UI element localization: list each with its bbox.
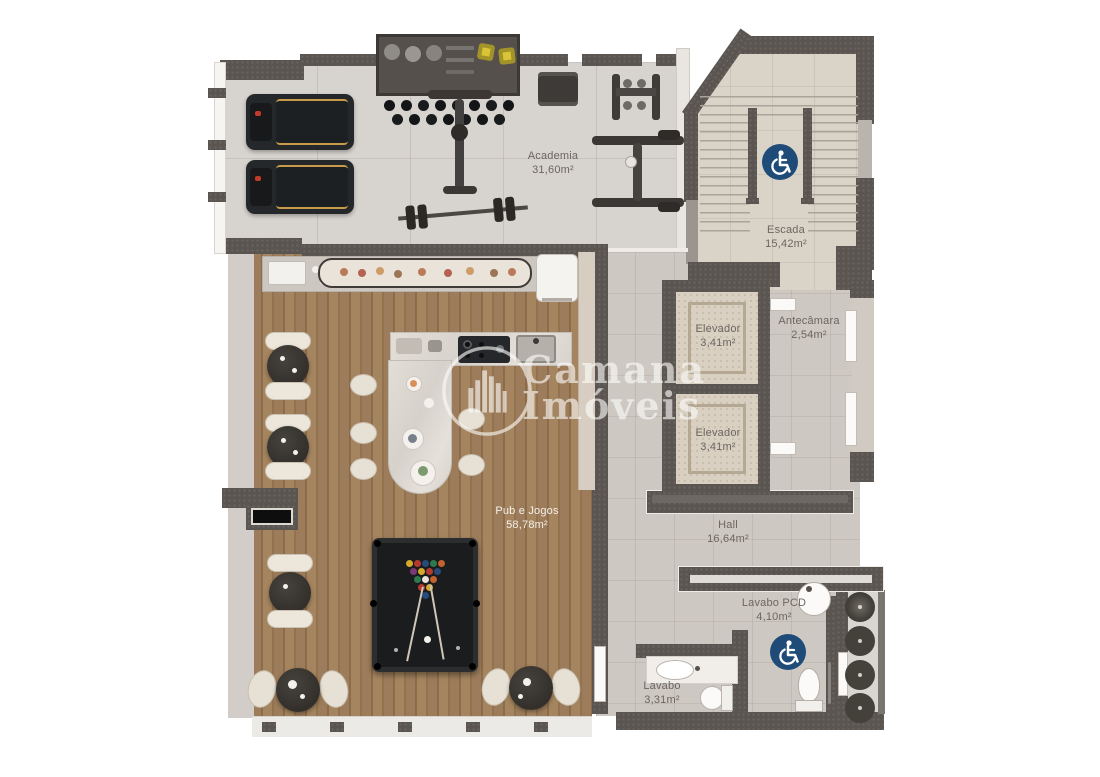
bottles (340, 268, 348, 276)
room-label-hall: Hall 16,64m² (667, 519, 789, 546)
stairs-window-right (858, 120, 872, 180)
pool-table (372, 538, 478, 672)
barbell-bar (398, 205, 528, 220)
table-cup (288, 680, 297, 689)
room-name: Lavabo PCD (714, 597, 834, 611)
island-stool (458, 454, 485, 476)
island-food (410, 380, 417, 387)
island-stool (350, 422, 377, 444)
booth-seat (267, 554, 313, 572)
stair-treads-left (700, 122, 750, 234)
weight-bench-seat (451, 124, 468, 141)
lounge-table (269, 572, 311, 614)
room-area: 16,64m² (667, 533, 789, 547)
elevator-door-jamb-1 (770, 298, 796, 311)
rack-handle-bar (446, 46, 474, 50)
window-post (208, 192, 226, 202)
booth-seat (265, 462, 311, 480)
hall-bench-top (652, 495, 848, 503)
room-area: 3,31m² (612, 694, 712, 708)
countertop-item (396, 338, 422, 354)
booth-seat (267, 610, 313, 628)
table-cup (293, 450, 298, 455)
balcony-ledge (228, 252, 254, 718)
cable-machine-stacks (623, 79, 632, 88)
room-name: Lavabo (612, 680, 712, 694)
functional-trainer-weight (658, 130, 680, 140)
table-cup (300, 694, 305, 699)
gym-hall-threshold (608, 248, 688, 252)
rack-plates-gray (384, 44, 400, 60)
table-cup (280, 356, 285, 361)
room-label-elevador-2: Elevador 3,41m² (662, 427, 774, 454)
planter-center (858, 605, 862, 609)
dumbbell-stand (538, 72, 578, 106)
treadmill (246, 160, 354, 214)
pool-marker (456, 646, 460, 650)
lavabo-faucet (695, 666, 700, 671)
stairs-wall-right-upper (856, 36, 874, 124)
lavabo-door (594, 646, 606, 702)
weight-bench-machine (428, 90, 492, 99)
room-name: Elevador (662, 427, 774, 441)
cooktop (458, 336, 510, 363)
lavabo-sink (656, 660, 694, 680)
table-cup (292, 368, 297, 373)
planter-access-door (838, 652, 848, 696)
gym-wall-bottom (220, 238, 302, 254)
gym-wall-top-left (220, 60, 304, 80)
facade-post (330, 722, 344, 732)
stair-core-wall-right (803, 108, 812, 200)
tall-cabinet (578, 252, 595, 490)
room-area: 31,60m² (488, 164, 618, 178)
room-name: Pub e Jogos (462, 505, 592, 519)
stairs-wall-left (684, 110, 698, 202)
treadmill (246, 94, 354, 150)
cue-ball (424, 636, 431, 643)
bistro-table (276, 668, 320, 712)
fridge (536, 254, 578, 302)
island-stool (350, 374, 377, 396)
lounge-table (267, 345, 309, 387)
shaft-wall-cap-bottom (850, 452, 874, 482)
cable-machine-frame-left (612, 74, 620, 120)
stairs-wall-left-lower (686, 200, 698, 264)
bottle-tray (318, 258, 532, 288)
treadmill-deck (276, 99, 348, 145)
gym-wall-top-1 (300, 54, 376, 66)
island-plate-small (424, 398, 434, 408)
room-area: 2,54m² (747, 329, 871, 343)
room-area: 3,41m² (662, 441, 774, 455)
room-label-antecamara: Antecâmara 2,54m² (747, 315, 871, 342)
room-name: Escada (724, 224, 848, 238)
wheelchair-accessibility-icon (762, 144, 798, 180)
room-name: Antecâmara (747, 315, 871, 329)
booth-seat (265, 382, 311, 400)
pcd-faucet (806, 586, 812, 592)
room-name: Hall (667, 519, 789, 533)
sink-faucet (533, 338, 539, 344)
rack-plate-yellow-2 (498, 47, 516, 65)
hall-window-glass (690, 575, 872, 583)
room-label-lavabo: Lavabo 3,31m² (612, 680, 712, 707)
treadmill-console (250, 168, 272, 206)
barbell-plates-right (493, 198, 504, 223)
cable-machine-frame-right (652, 74, 660, 120)
bottom-wall-right-wing (616, 712, 884, 730)
window-post (208, 88, 226, 98)
gym-wall-top-2 (520, 54, 568, 66)
pool-marker (394, 648, 398, 652)
stairs-wall-top (738, 36, 874, 54)
room-area: 15,42m² (724, 238, 848, 252)
room-name: Academia (488, 150, 618, 164)
stair-core-foot-right (801, 198, 814, 204)
fireplace-opening (251, 508, 293, 525)
room-area: 58,78m² (462, 519, 592, 533)
functional-trainer-column (633, 143, 642, 201)
weight-bench-foot (443, 186, 477, 194)
stair-treads-right (808, 122, 858, 234)
dumbbell-row (384, 100, 395, 111)
island-stool (458, 408, 485, 430)
barbell-plates-left (405, 205, 416, 230)
table-cup (283, 584, 288, 589)
wheelchair-accessibility-icon (770, 634, 806, 670)
facade-post (398, 722, 412, 732)
table-cup (523, 678, 531, 686)
room-label-pub: Pub e Jogos 58,78m² (462, 505, 592, 532)
weight-bench-post (455, 99, 464, 189)
facade-post (534, 722, 548, 732)
island-stool (350, 458, 377, 480)
treadmill-console-light (255, 176, 261, 181)
pool-balls-row (410, 568, 417, 575)
treadmill-console-light (255, 111, 261, 116)
treadmill-deck (276, 165, 348, 209)
table-cup (518, 694, 523, 699)
treadmill-console (250, 103, 272, 141)
stair-core-foot-left (746, 198, 759, 204)
lavabo-toilet-tank (721, 685, 733, 711)
countertop-item (428, 340, 442, 352)
stair-core-wall-left (748, 108, 757, 200)
facade-post (262, 722, 276, 732)
cable-machine-crossbar (616, 88, 656, 96)
room-label-escada: Escada 15,42m² (724, 224, 848, 251)
dumbbell-rack (376, 34, 520, 96)
cooktop-dial (496, 345, 504, 353)
facade-post (466, 722, 480, 732)
pcd-toilet-tank (795, 700, 823, 712)
island-food (418, 466, 428, 476)
floor-plan: Academia 31,60m² Escada 15,42m² Elevador… (0, 0, 1100, 777)
room-area: 4,10m² (714, 611, 834, 625)
planter-border-right (878, 590, 885, 714)
functional-trainer-pulley (625, 156, 637, 168)
table-cup (281, 438, 286, 443)
burner (463, 340, 472, 349)
pool-balls-row (414, 576, 421, 583)
gym-wall-top-3 (582, 54, 642, 66)
room-label-academia: Academia 31,60m² (488, 150, 618, 177)
pool-balls-row (406, 560, 413, 567)
rack-plate-yellow-1 (477, 43, 496, 62)
pool-ball (422, 592, 429, 599)
window-post (208, 140, 226, 150)
room-label-lavabo-pcd: Lavabo PCD 4,10m² (714, 597, 834, 624)
island-food (408, 434, 417, 443)
pool-pocket (374, 540, 381, 547)
shaft-wall-cap-top (850, 280, 874, 298)
pcd-grab-bar (828, 662, 831, 704)
bar-appliance (268, 261, 306, 285)
pcd-toilet-bowl (798, 668, 820, 702)
antechamber-door-2 (845, 392, 857, 446)
fridge-handle (542, 298, 572, 301)
stair-treads-top (700, 96, 858, 122)
bistro-table (509, 666, 553, 710)
